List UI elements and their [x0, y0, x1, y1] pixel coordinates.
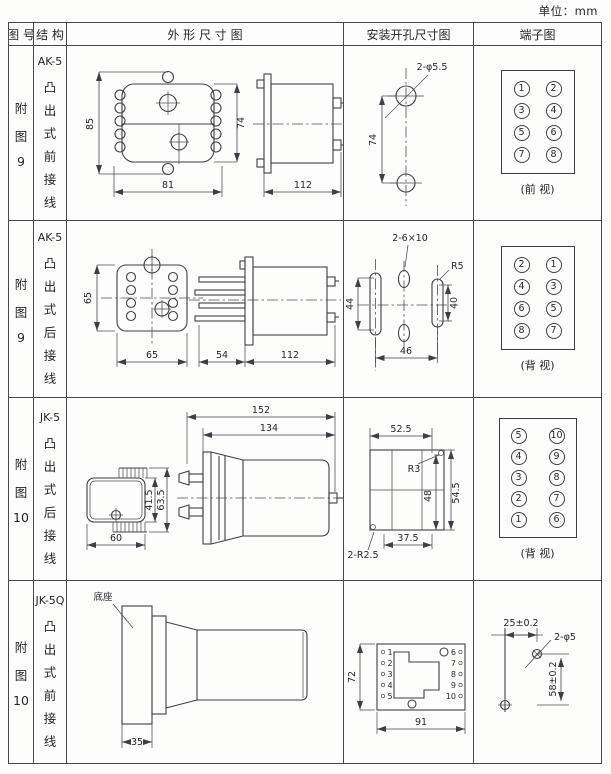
figure-number-row4: 附 图 10: [9, 581, 34, 763]
terminal-number: 7: [546, 323, 562, 339]
structure-char: 线: [44, 548, 57, 567]
terminal-number: 7: [514, 147, 530, 163]
structure-row4: JK-5Q 凸 出 式 前 接 线: [34, 581, 67, 763]
header-outline: 外 形 尺 寸 图: [67, 23, 344, 46]
structure-char: 接: [44, 169, 57, 188]
terminal-number: 9: [451, 681, 456, 690]
dim-label: 65: [146, 350, 158, 361]
figure-char: 图: [15, 665, 28, 684]
structure-row1: AK-5 凸 出 式 前 接 线: [34, 46, 67, 221]
figure-char: 10: [13, 510, 29, 525]
holes-label: 2-φ5: [554, 632, 576, 643]
outline-drawing-row2: 65 65: [67, 221, 344, 398]
dim-label: 112: [294, 180, 312, 191]
terminal-number: 1: [514, 81, 530, 97]
figure-char: 图: [15, 302, 28, 321]
terminal-number: 1: [388, 648, 393, 657]
outline-drawing-row4: 底座 35: [67, 581, 344, 763]
structure-char: 后: [44, 322, 57, 341]
structure-char: 式: [44, 123, 57, 142]
structure-char: 凸: [44, 433, 57, 452]
dim-label: 58±0.2: [548, 661, 559, 696]
mounting-svg-ak5-front: 2-φ5.5 74: [344, 46, 473, 220]
view-label: (背 视): [520, 357, 554, 373]
mounting-svg-ak5-rear: 2-6×10 R5 44 40 46: [344, 221, 473, 397]
model-label: AK-5: [38, 55, 63, 68]
dim-label: 44: [345, 298, 356, 310]
dim-label: 85: [85, 118, 96, 130]
figure-char: 附: [15, 637, 28, 656]
mounting-svg-jk5-rear: 52.5 R3 48 54.5 37.5 2-R2.5: [344, 398, 473, 580]
outline-svg-ak5-rear: 65 65: [67, 221, 343, 397]
drill-drawing-row4: 25±0.2 2-φ5 58±0.2: [474, 581, 601, 763]
base-label: 底座: [93, 591, 113, 603]
dim-label: 37.5: [397, 533, 418, 544]
structure-row2: AK-5 凸 出 式 后 接 线: [34, 221, 67, 398]
dim-label: 60: [110, 533, 122, 544]
unit-label: 单位：mm: [539, 3, 598, 19]
dim-label: 35: [131, 737, 143, 748]
header-figure: 图 号: [9, 23, 34, 46]
view-label: (前 视): [520, 181, 554, 197]
structure-char: 凸: [44, 616, 57, 635]
structure-char: 线: [44, 192, 57, 211]
terminal-number: 1: [511, 512, 527, 528]
terminal-number: 8: [549, 470, 565, 486]
model-label: JK-5: [40, 411, 60, 424]
mounting-drawing-row1: 2-φ5.5 74: [344, 46, 474, 221]
mounting-drawing-row4: 1 2 3 4 5 6 7 8 9 10: [344, 581, 474, 763]
terminal-number: 4: [511, 449, 527, 465]
figure-number-row1: 附 图 9: [9, 46, 34, 221]
structure-row3: JK-5 凸 出 式 后 接 线: [34, 398, 67, 581]
mounting-drawing-row2: 2-6×10 R5 44 40 46: [344, 221, 474, 398]
dim-label: 54: [216, 350, 228, 361]
structure-char: 凸: [44, 77, 57, 96]
outline-svg-jk5-rear: 152 134: [67, 398, 343, 580]
terminal-number: 3: [546, 279, 562, 295]
structure-char: 式: [44, 479, 57, 498]
figure-char: 附: [15, 454, 28, 473]
terminal-number: 6: [514, 301, 530, 317]
terminal-number: 2: [511, 491, 527, 507]
structure-char: 线: [44, 368, 57, 387]
outline-svg-jk5q: 底座 35: [67, 582, 343, 763]
header-terminal: 端子图: [474, 23, 601, 46]
dim-label: 52.5: [390, 424, 411, 435]
view-label: (背 视): [520, 545, 554, 561]
terminal-number: 1: [546, 257, 562, 273]
terminal-cell-row1: 1 2 3 4 5 6 7 8 (前 视): [474, 46, 601, 221]
model-label: JK-5Q: [36, 594, 65, 607]
header-structure: 结 构: [34, 23, 67, 46]
terminal-number: 7: [549, 491, 565, 507]
dim-label: 41.5: [144, 489, 155, 510]
structure-char: 式: [44, 662, 57, 681]
terminal-number: 8: [451, 670, 456, 679]
terminal-diagram: 2 1 4 3 6 5 8 7: [501, 246, 575, 350]
structure-char: 出: [44, 100, 57, 119]
terminal-number: 5: [511, 428, 527, 444]
terminal-number: 2: [546, 81, 562, 97]
terminal-number: 4: [546, 103, 562, 119]
outline-drawing-row1: 85 74 81: [67, 46, 344, 221]
terminal-number: 8: [546, 147, 562, 163]
outline-svg-ak5-front: 85 74 81: [67, 46, 343, 220]
structure-char: 出: [44, 276, 57, 295]
dim-label: 63.5: [156, 489, 167, 510]
terminal-number: 10: [446, 692, 456, 701]
figure-number-row2: 附 图 9: [9, 221, 34, 398]
structure-char: 前: [44, 685, 57, 704]
dimension-table: 图 号 结 构 外 形 尺 寸 图 安装开孔尺寸图 端子图 附 图 9 AK-5…: [8, 22, 602, 764]
mounting-svg-jk5q: 1 2 3 4 5 6 7 8 9 10: [344, 582, 473, 763]
terminal-number: 5: [388, 692, 393, 701]
dim-label: 65: [83, 292, 94, 304]
figure-char: 图: [15, 482, 28, 501]
dim-label: 81: [162, 180, 174, 191]
figure-char: 附: [15, 274, 28, 293]
dim-label: 25±0.2: [503, 618, 538, 629]
structure-char: 式: [44, 299, 57, 318]
dim-label: 112: [281, 350, 299, 361]
header-mounting: 安装开孔尺寸图: [344, 23, 474, 46]
dim-label: 48: [423, 490, 434, 502]
dim-label: 91: [415, 717, 427, 728]
terminal-number: 5: [514, 125, 530, 141]
holes-label: 2-φ5.5: [417, 62, 448, 73]
document-page: 单位：mm 图 号 结 构 外 形 尺 寸 图 安装开孔尺寸图 端子图 附 图 …: [0, 0, 611, 774]
terminal-number: 6: [546, 125, 562, 141]
terminal-number: 10: [549, 428, 565, 444]
structure-char: 接: [44, 525, 57, 544]
footprint-terminals: 1 2 3 4 5 6 7 8 9 10: [381, 648, 462, 701]
outline-drawing-row3: 152 134: [67, 398, 344, 581]
drill-svg-jk5q: 25±0.2 2-φ5 58±0.2: [475, 582, 601, 763]
dim-label: 74: [368, 134, 379, 146]
structure-char: 出: [44, 639, 57, 658]
mounting-drawing-row3: 52.5 R3 48 54.5 37.5 2-R2.5: [344, 398, 474, 581]
figure-char: 9: [17, 330, 25, 345]
structure-char: 线: [44, 731, 57, 750]
structure-char: 前: [44, 146, 57, 165]
terminal-number: 8: [514, 323, 530, 339]
dim-label: 134: [260, 423, 278, 434]
radius-label: R5: [451, 261, 464, 272]
figure-char: 10: [13, 693, 29, 708]
terminal-number: 2: [388, 659, 393, 668]
dim-label: 72: [347, 670, 358, 682]
figure-char: 图: [15, 126, 28, 145]
corner-radius-label: 2-R2.5: [347, 550, 378, 561]
terminal-number: 7: [451, 659, 456, 668]
slots-label: 2-6×10: [392, 233, 428, 244]
terminal-number: 2: [514, 257, 530, 273]
terminal-number: 4: [388, 681, 393, 690]
terminal-number: 9: [549, 449, 565, 465]
structure-char: 接: [44, 708, 57, 727]
figure-char: 9: [17, 154, 25, 169]
terminal-number: 6: [451, 648, 456, 657]
structure-char: 出: [44, 456, 57, 475]
figure-number-row3: 附 图 10: [9, 398, 34, 581]
terminal-cell-row2: 2 1 4 3 6 5 8 7 (背 视): [474, 221, 601, 398]
terminal-number: 4: [514, 279, 530, 295]
terminal-number: 3: [388, 670, 393, 679]
structure-char: 凸: [44, 253, 57, 272]
structure-char: 后: [44, 502, 57, 521]
terminal-cell-row3: 5 10 4 9 3 8 2 7 1 6 (背 视): [474, 398, 601, 581]
dim-label: 46: [400, 346, 412, 357]
terminal-number: 3: [511, 470, 527, 486]
terminal-number: 3: [514, 103, 530, 119]
structure-char: 接: [44, 345, 57, 364]
terminal-number: 6: [549, 512, 565, 528]
dim-label: 40: [449, 297, 460, 309]
figure-char: 附: [15, 98, 28, 117]
terminal-diagram: 5 10 4 9 3 8 2 7 1 6: [499, 418, 577, 538]
dim-label: 74: [236, 117, 247, 129]
dim-label: 54.5: [451, 482, 462, 503]
model-label: AK-5: [38, 231, 63, 244]
terminal-diagram: 1 2 3 4 5 6 7 8: [501, 70, 575, 174]
dim-label: 152: [252, 405, 270, 416]
terminal-number: 5: [546, 301, 562, 317]
radius-label: R3: [408, 464, 421, 475]
